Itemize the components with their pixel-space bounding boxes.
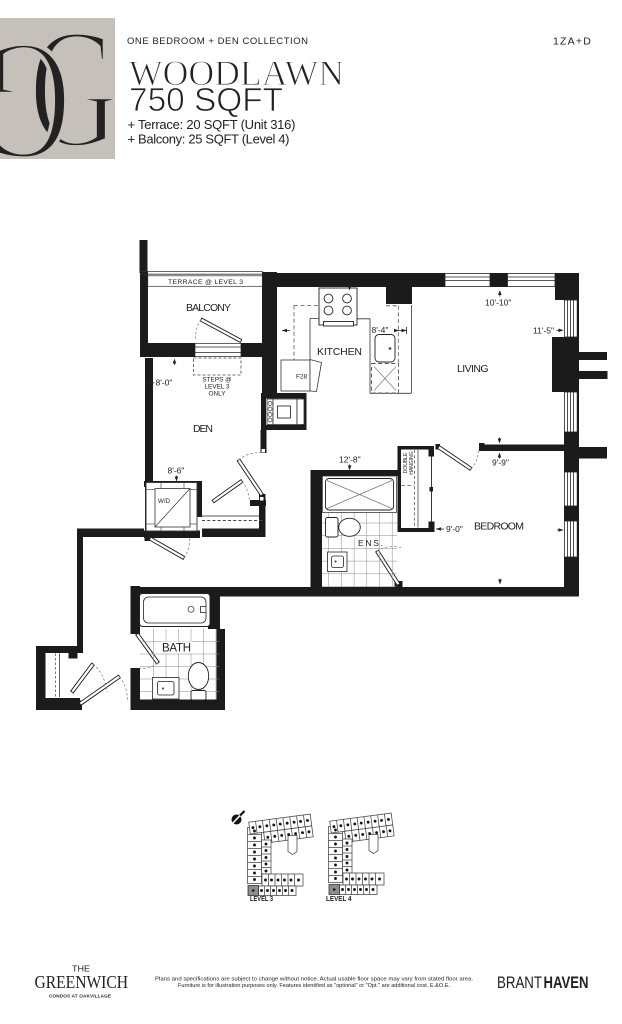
svg-text:HANGING: HANGING [409, 451, 415, 474]
svg-text:8'-6": 8'-6" [168, 466, 185, 476]
svg-text:W/D: W/D [158, 498, 171, 505]
svg-text:8'-0": 8'-0" [156, 378, 173, 388]
svg-text:CONDOS AT OAKVILLAGE: CONDOS AT OAKVILLAGE [49, 994, 111, 999]
svg-text:GREENWICH: GREENWICH [35, 972, 129, 992]
svg-text:11'-5": 11'-5" [533, 326, 554, 336]
svg-text:Furniture is for illustration: Furniture is for illustration purposes o… [178, 983, 450, 989]
svg-text:TERRACE @ LEVEL 3: TERRACE @ LEVEL 3 [168, 279, 243, 286]
svg-text:F28: F28 [296, 374, 307, 381]
svg-text:Plans and specifications are s: Plans and specifications are subject to … [155, 977, 473, 983]
svg-text:ONE BEDROOM + DEN COLLECTION: ONE BEDROOM + DEN COLLECTION [127, 36, 308, 47]
svg-text:LEVEL 4: LEVEL 4 [326, 894, 352, 903]
svg-text:1ZA+D: 1ZA+D [553, 36, 592, 48]
svg-text:ONLY: ONLY [209, 391, 227, 398]
svg-text:KITCHEN: KITCHEN [317, 346, 362, 358]
svg-text:9'-0": 9'-0" [446, 524, 463, 534]
svg-text:+ Terrace: 20 SQFT (Unit 316): + Terrace: 20 SQFT (Unit 316) [128, 117, 296, 132]
svg-text:LEVEL 3: LEVEL 3 [205, 384, 230, 391]
svg-text:+ Balcony: 25 SQFT (Level 4): + Balcony: 25 SQFT (Level 4) [128, 131, 290, 146]
svg-text:BALCONY: BALCONY [186, 302, 231, 314]
svg-text:10'-10": 10'-10" [485, 298, 511, 308]
svg-text:DEN: DEN [193, 423, 213, 435]
svg-text:BEDROOM: BEDROOM [474, 521, 524, 533]
svg-text:LIVING: LIVING [457, 363, 489, 375]
svg-text:STEPS @: STEPS @ [202, 377, 231, 384]
svg-text:HAVEN: HAVEN [544, 974, 589, 992]
svg-text:8'-4": 8'-4" [372, 325, 389, 335]
svg-text:750 SQFT: 750 SQFT [129, 81, 283, 118]
svg-text:9'-9": 9'-9" [492, 458, 509, 468]
svg-text:12'-8": 12'-8" [339, 455, 361, 465]
svg-text:BRANT: BRANT [497, 974, 542, 992]
svg-text:LEVEL 3: LEVEL 3 [250, 894, 273, 903]
svg-text:BATH: BATH [162, 643, 191, 655]
